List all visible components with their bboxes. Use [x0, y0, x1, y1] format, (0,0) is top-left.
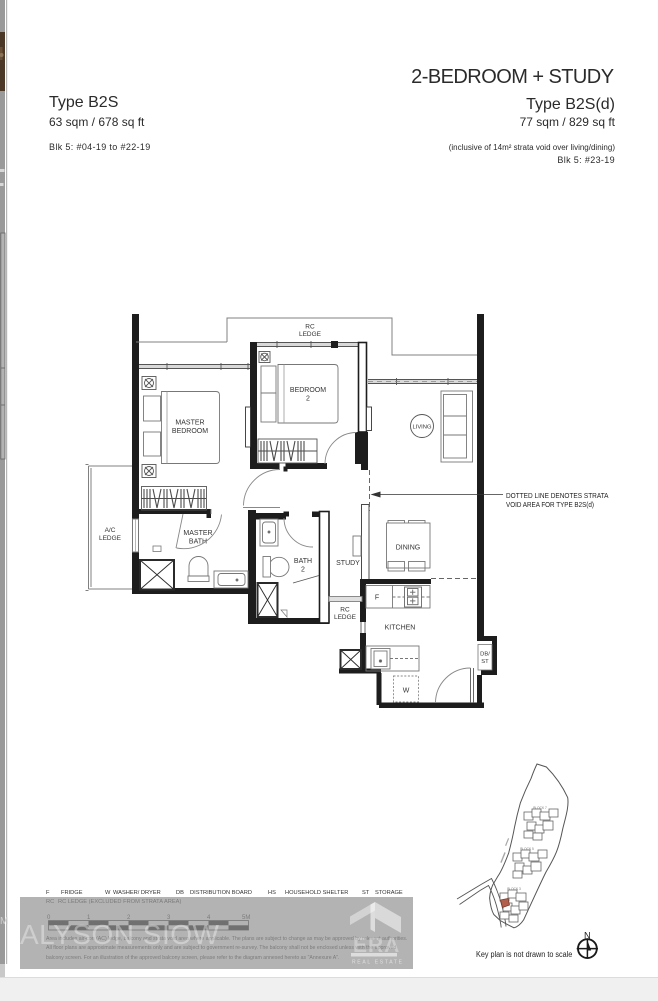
svg-text:LIVING: LIVING: [412, 425, 431, 431]
svg-text:RC: RC: [340, 607, 350, 614]
svg-text:REAL ESTATE: REAL ESTATE: [352, 960, 404, 966]
svg-text:RC: RC: [305, 324, 315, 331]
svg-text:BATH: BATH: [189, 539, 207, 546]
svg-text:2: 2: [306, 396, 310, 403]
svg-text:VOID AREA FOR TYPE B2S(d): VOID AREA FOR TYPE B2S(d): [506, 500, 594, 509]
svg-text:DB/: DB/: [480, 652, 490, 658]
svg-text:BATH: BATH: [294, 558, 312, 565]
svg-text:A/C: A/C: [105, 527, 116, 534]
svg-text:DINING: DINING: [396, 545, 421, 552]
svg-text:LEDGE: LEDGE: [334, 614, 357, 621]
svg-text:BEDROOM: BEDROOM: [172, 428, 208, 435]
svg-text:W: W: [403, 688, 410, 695]
svg-text:2: 2: [301, 567, 305, 574]
svg-text:MASTER: MASTER: [175, 420, 204, 427]
svg-text:BLOCK 3: BLOCK 3: [507, 887, 521, 891]
svg-text:F: F: [375, 595, 379, 602]
svg-text:LEDGE: LEDGE: [99, 535, 122, 542]
svg-text:BEDROOM: BEDROOM: [290, 387, 326, 394]
svg-text:BLOCK 7: BLOCK 7: [533, 806, 547, 810]
svg-text:STUDY: STUDY: [336, 560, 360, 567]
svg-text:BLOCK 5: BLOCK 5: [520, 847, 534, 851]
svg-text:M: M: [0, 916, 8, 927]
svg-text:ST: ST: [481, 659, 489, 665]
svg-text:LEDGE: LEDGE: [299, 331, 322, 338]
svg-text:KITCHEN: KITCHEN: [385, 625, 416, 632]
svg-text:DOTTED LINE DENOTES STRATA: DOTTED LINE DENOTES STRATA: [506, 491, 609, 500]
svg-text:MASTER: MASTER: [183, 530, 212, 537]
